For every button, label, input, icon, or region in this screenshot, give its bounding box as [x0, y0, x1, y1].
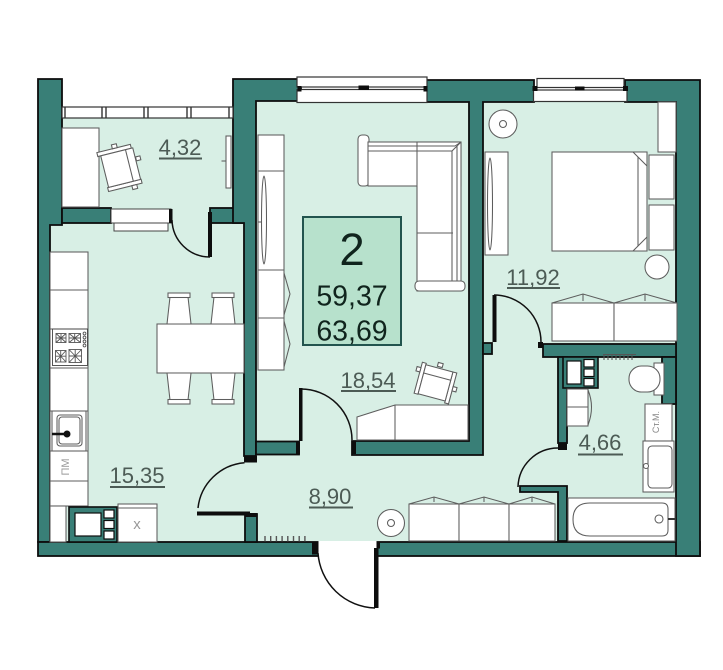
svg-text:4,32: 4,32 [159, 135, 202, 160]
svg-text:63,69: 63,69 [316, 316, 387, 348]
svg-text:Ст.М.: Ст.М. [651, 411, 661, 433]
svg-text:8,90: 8,90 [309, 484, 352, 509]
svg-text:ПМ: ПМ [60, 458, 72, 475]
svg-text:15,35: 15,35 [109, 463, 164, 488]
svg-text:18,54: 18,54 [340, 368, 395, 393]
svg-text:59,37: 59,37 [316, 281, 387, 313]
svg-text:2: 2 [339, 224, 364, 275]
svg-text:11,92: 11,92 [506, 265, 559, 290]
svg-text:x: x [133, 516, 141, 533]
svg-text:4,66: 4,66 [579, 430, 622, 455]
